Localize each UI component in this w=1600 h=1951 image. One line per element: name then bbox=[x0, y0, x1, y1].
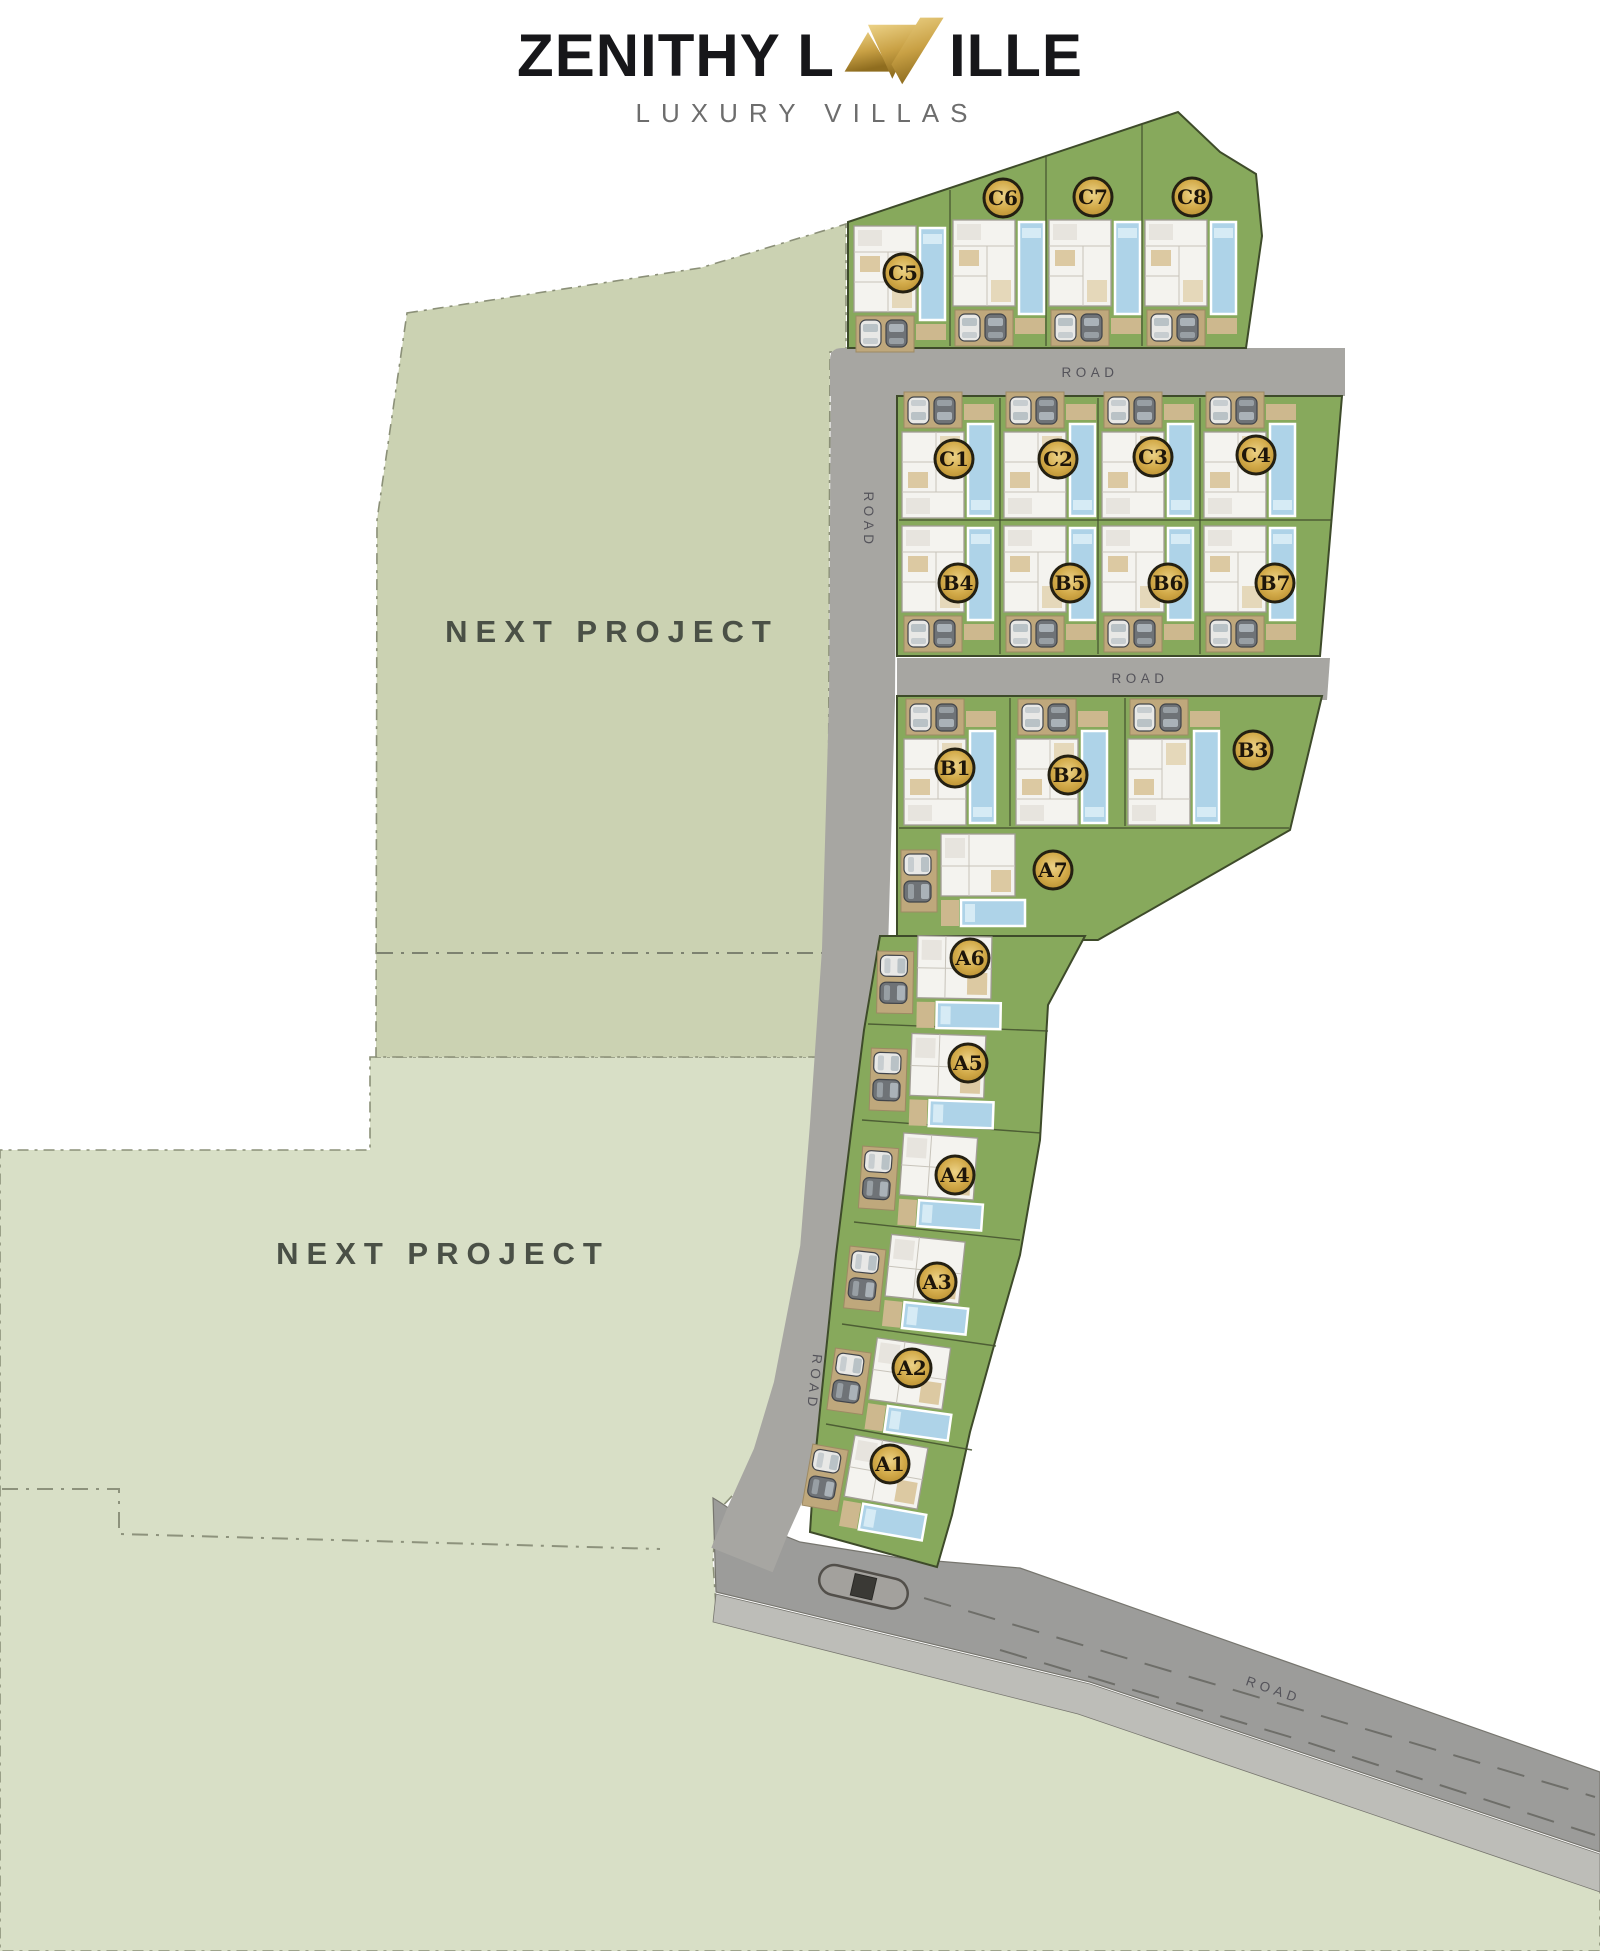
plot-badge-C3[interactable]: C3 bbox=[1134, 438, 1172, 476]
plot-badge-B1[interactable]: B1 bbox=[936, 749, 974, 787]
svg-text:B3: B3 bbox=[1238, 738, 1269, 762]
car-icon bbox=[908, 397, 929, 424]
car-icon bbox=[860, 320, 881, 347]
svg-text:C6: C6 bbox=[988, 186, 1018, 210]
plot-badge-A1[interactable]: A1 bbox=[871, 1445, 909, 1483]
car-icon bbox=[1210, 620, 1231, 647]
svg-text:A2: A2 bbox=[896, 1356, 926, 1380]
car-icon bbox=[1036, 397, 1057, 424]
guard-booth-icon bbox=[850, 1574, 876, 1600]
plot-badge-C6[interactable]: C6 bbox=[984, 179, 1022, 217]
svg-text:B5: B5 bbox=[1055, 571, 1086, 595]
car-icon bbox=[862, 1177, 890, 1200]
car-icon bbox=[959, 314, 980, 341]
car-icon bbox=[1108, 397, 1129, 424]
plot-badge-B3[interactable]: B3 bbox=[1234, 731, 1272, 769]
logo-tagline: LUXURY VILLAS bbox=[0, 98, 1600, 129]
villa-C7 bbox=[1049, 220, 1141, 346]
plot-badge-C2[interactable]: C2 bbox=[1039, 440, 1077, 478]
plot-badge-A2[interactable]: A2 bbox=[893, 1349, 931, 1387]
svg-text:A4: A4 bbox=[939, 1163, 970, 1187]
plot-badge-A7[interactable]: A7 bbox=[1034, 851, 1072, 889]
logo-title-pre: ZENITHY L bbox=[517, 26, 835, 86]
plot-badge-A5[interactable]: A5 bbox=[949, 1044, 987, 1082]
car-icon bbox=[850, 1250, 879, 1274]
svg-text:A3: A3 bbox=[921, 1270, 951, 1294]
area-label-next-project-1: NEXT PROJECT bbox=[445, 614, 779, 649]
villa-C8 bbox=[1145, 220, 1237, 346]
car-icon bbox=[910, 704, 931, 731]
plot-badge-B4[interactable]: B4 bbox=[939, 564, 977, 602]
car-icon bbox=[835, 1352, 865, 1377]
car-icon bbox=[1010, 397, 1031, 424]
car-icon bbox=[908, 620, 929, 647]
car-icon bbox=[1236, 397, 1257, 424]
car-icon bbox=[1177, 314, 1198, 341]
project-logo: ZENITHY L ILLE LUXURY VILLAS bbox=[0, 14, 1600, 129]
plot-badge-C5[interactable]: C5 bbox=[884, 254, 922, 292]
car-icon bbox=[880, 955, 907, 976]
car-icon bbox=[886, 320, 907, 347]
plot-badge-C7[interactable]: C7 bbox=[1074, 178, 1112, 216]
road-label: ROAD bbox=[861, 491, 876, 548]
plot-badge-A6[interactable]: A6 bbox=[951, 939, 989, 977]
villa-B3 bbox=[1128, 699, 1220, 825]
road-label: ROAD bbox=[1061, 365, 1118, 380]
plot-badge-B5[interactable]: B5 bbox=[1051, 564, 1089, 602]
plot-badge-B2[interactable]: B2 bbox=[1049, 756, 1087, 794]
logo-title-post: ILLE bbox=[949, 26, 1083, 86]
plot-badge-B6[interactable]: B6 bbox=[1149, 564, 1187, 602]
svg-text:A5: A5 bbox=[952, 1051, 982, 1075]
car-icon bbox=[934, 620, 955, 647]
svg-text:C1: C1 bbox=[939, 447, 969, 471]
car-icon bbox=[904, 854, 931, 875]
car-icon bbox=[1160, 704, 1181, 731]
car-icon bbox=[864, 1150, 892, 1173]
car-icon bbox=[1022, 704, 1043, 731]
svg-text:B4: B4 bbox=[943, 571, 974, 595]
car-icon bbox=[1236, 620, 1257, 647]
gold-av-monogram-icon bbox=[843, 14, 947, 86]
plot-badge-B7[interactable]: B7 bbox=[1256, 564, 1294, 602]
plot-badge-C4[interactable]: C4 bbox=[1237, 436, 1275, 474]
svg-text:C3: C3 bbox=[1138, 445, 1168, 469]
logo-title: ZENITHY L ILLE bbox=[0, 14, 1600, 86]
plot-badge-A4[interactable]: A4 bbox=[936, 1156, 974, 1194]
plot-badge-A3[interactable]: A3 bbox=[918, 1263, 956, 1301]
car-icon bbox=[1010, 620, 1031, 647]
svg-text:A1: A1 bbox=[874, 1452, 904, 1476]
area-label-next-project-2: NEXT PROJECT bbox=[276, 1236, 610, 1271]
svg-text:C5: C5 bbox=[888, 261, 918, 285]
car-icon bbox=[807, 1475, 837, 1500]
car-icon bbox=[848, 1277, 877, 1301]
car-icon bbox=[873, 1052, 901, 1074]
master-plan-svg: C5 C6 C7 C8 C1 C2 C3 C4 B4 B5 B6 B7 bbox=[0, 0, 1600, 1951]
plot-badge-C1[interactable]: C1 bbox=[935, 440, 973, 478]
car-icon bbox=[1036, 620, 1057, 647]
svg-text:C8: C8 bbox=[1177, 185, 1207, 209]
car-icon bbox=[904, 881, 931, 902]
car-icon bbox=[1134, 704, 1155, 731]
svg-text:C4: C4 bbox=[1241, 443, 1271, 467]
svg-text:C2: C2 bbox=[1043, 447, 1073, 471]
car-icon bbox=[936, 704, 957, 731]
villa-C6 bbox=[953, 220, 1045, 346]
car-icon bbox=[1055, 314, 1076, 341]
svg-text:A7: A7 bbox=[1037, 858, 1067, 882]
car-icon bbox=[985, 314, 1006, 341]
car-icon bbox=[1210, 397, 1231, 424]
car-icon bbox=[880, 982, 907, 1003]
car-icon bbox=[1151, 314, 1172, 341]
svg-text:A6: A6 bbox=[954, 946, 984, 970]
car-icon bbox=[1108, 620, 1129, 647]
site-plan-page: C5 C6 C7 C8 C1 C2 C3 C4 B4 B5 B6 B7 bbox=[0, 0, 1600, 1951]
svg-text:B2: B2 bbox=[1053, 763, 1084, 787]
car-icon bbox=[831, 1379, 861, 1404]
car-icon bbox=[873, 1079, 901, 1101]
svg-text:B6: B6 bbox=[1153, 571, 1184, 595]
car-icon bbox=[811, 1449, 841, 1474]
car-icon bbox=[934, 397, 955, 424]
road-label: ROAD bbox=[1111, 671, 1168, 686]
car-icon bbox=[1081, 314, 1102, 341]
car-icon bbox=[1134, 620, 1155, 647]
svg-text:B1: B1 bbox=[940, 756, 971, 780]
car-icon bbox=[1134, 397, 1155, 424]
svg-text:B7: B7 bbox=[1260, 571, 1291, 595]
svg-text:C7: C7 bbox=[1078, 185, 1108, 209]
plot-badge-C8[interactable]: C8 bbox=[1173, 178, 1211, 216]
car-icon bbox=[1048, 704, 1069, 731]
